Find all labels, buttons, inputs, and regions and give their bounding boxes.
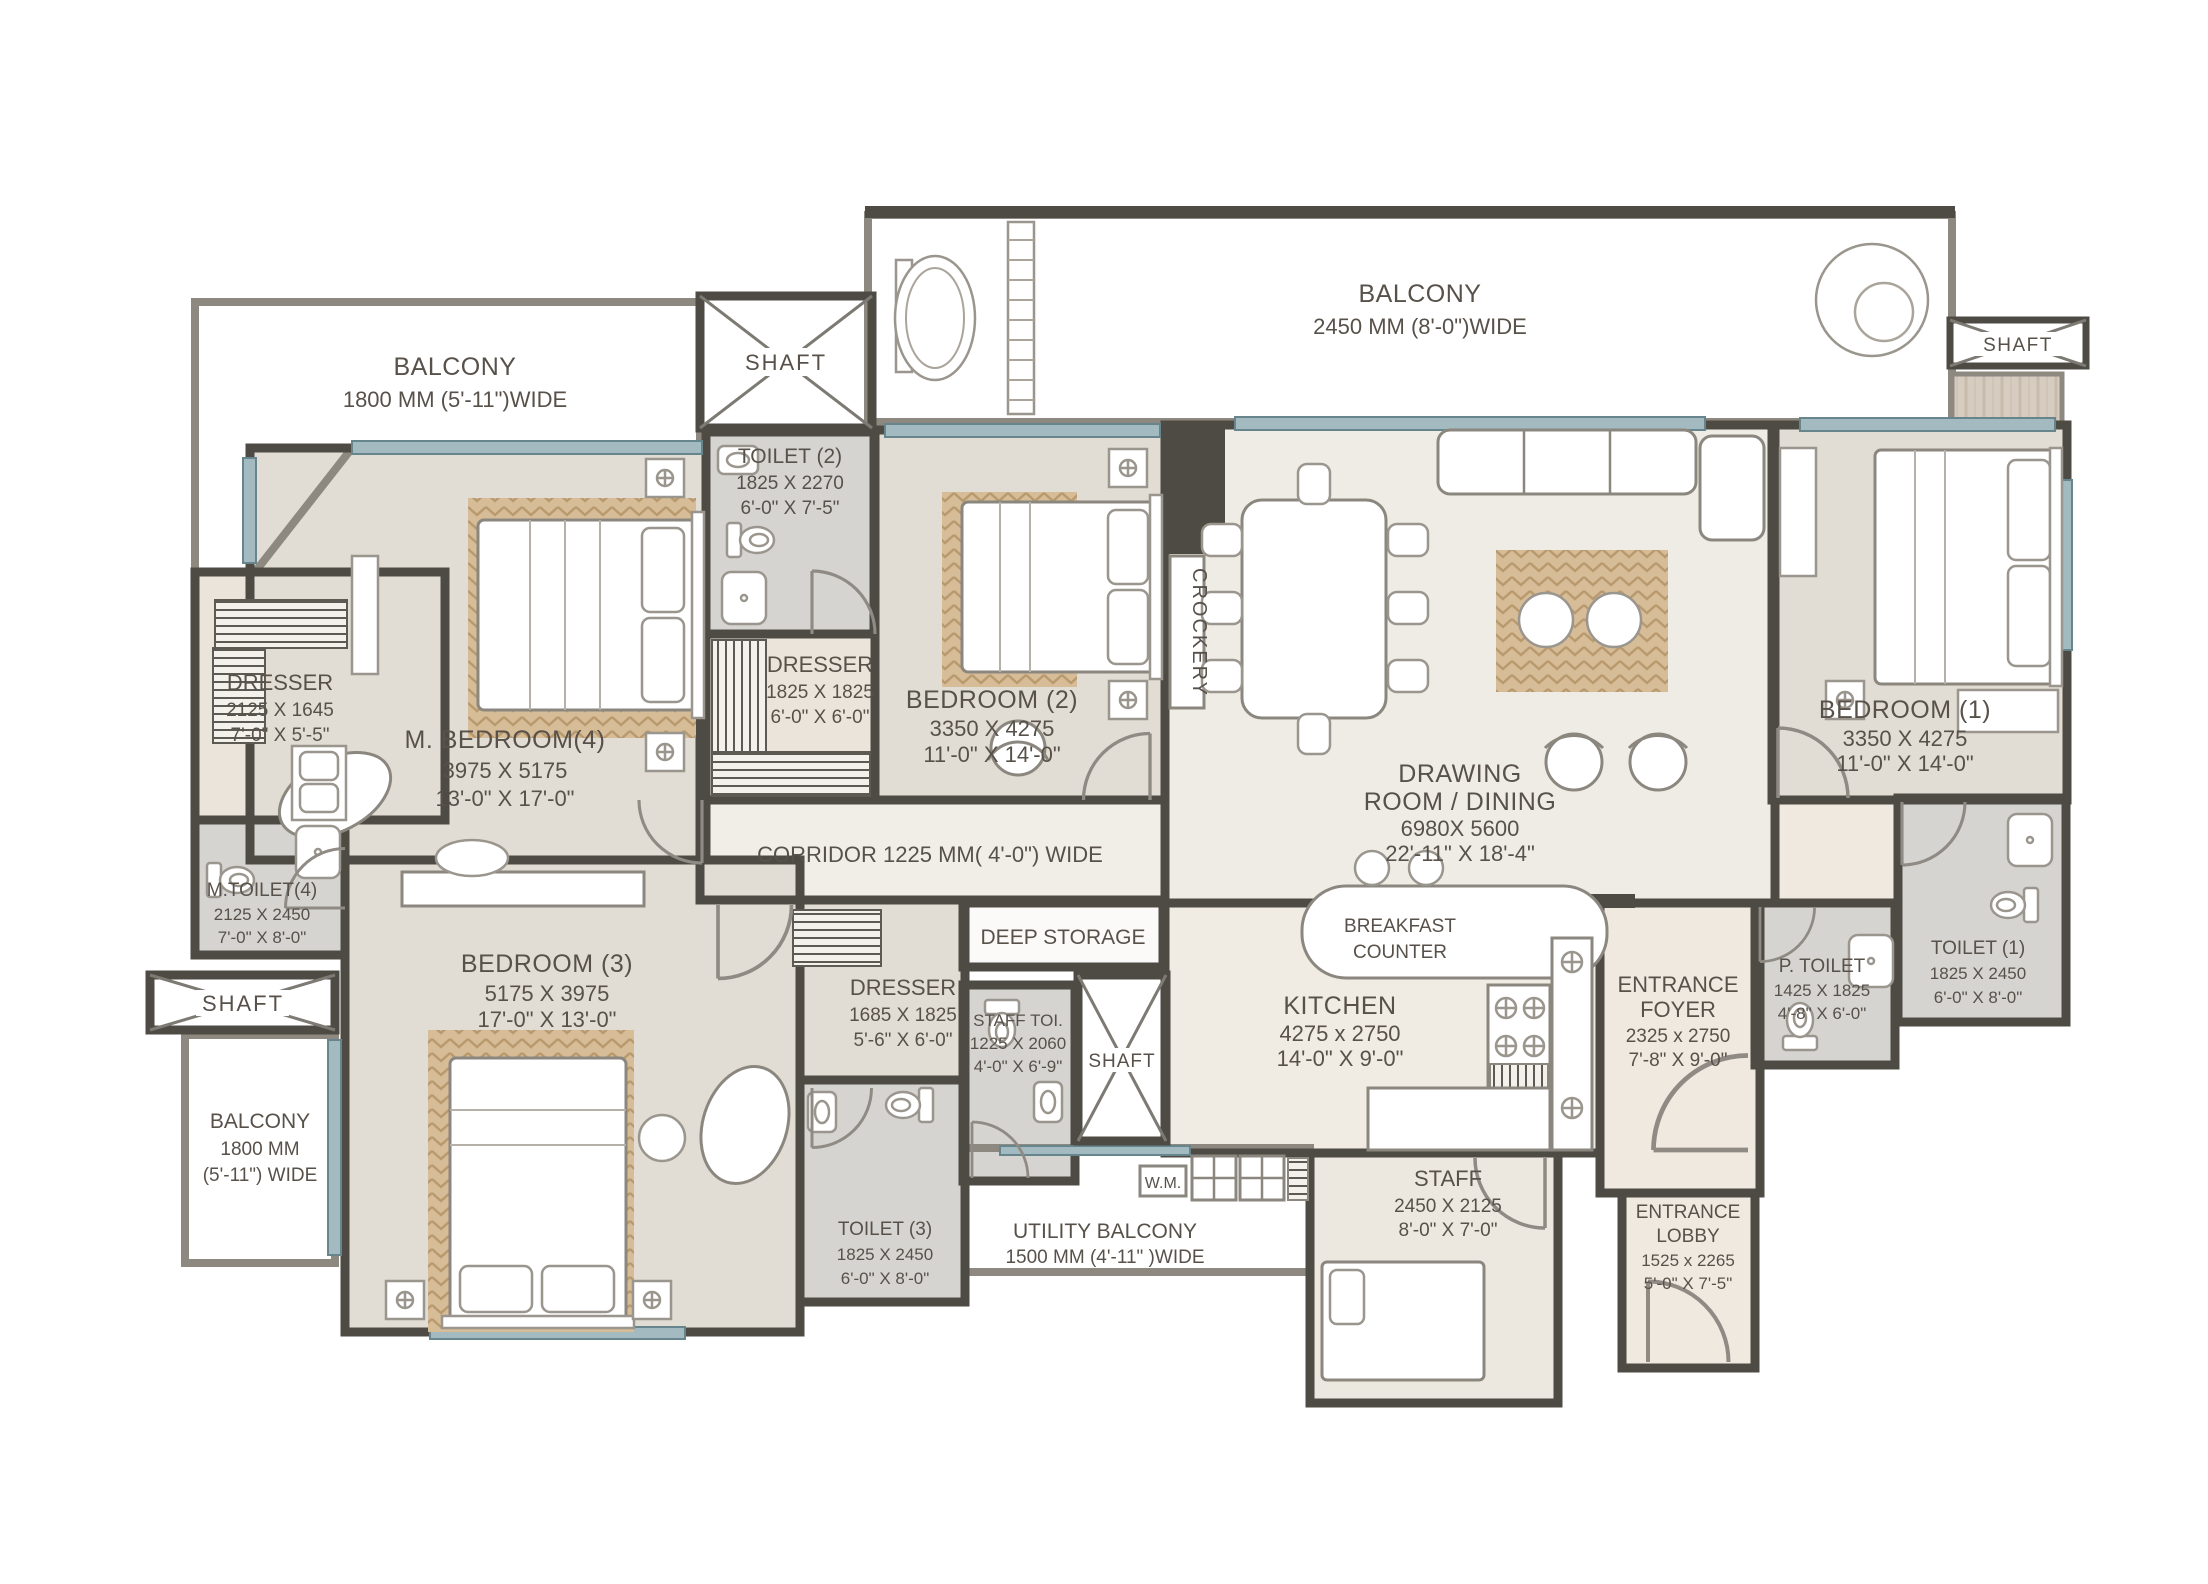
- foyer-dim-ft: 7'-8" X 9'-0": [1629, 1050, 1728, 1071]
- side-table-icon: [646, 733, 684, 771]
- pillow: [2008, 460, 2050, 560]
- toilet-3-dim-mm: 1825 X 2450: [837, 1245, 933, 1264]
- headboard: [442, 1316, 634, 1328]
- shaft-top-right: SHAFT: [1950, 320, 2086, 366]
- desk-chair-icon: [436, 840, 508, 876]
- balcony-bl-dim-ft: (5'-11") WIDE: [203, 1165, 318, 1186]
- pillow: [542, 1266, 614, 1312]
- window-drawing-room: [1235, 417, 1705, 430]
- lobby-dim-ft: 5'-0" X 7'-5": [1644, 1274, 1733, 1293]
- sofa-icon: [1700, 436, 1764, 540]
- lobby-dim-mm: 1525 x 2265: [1641, 1251, 1735, 1270]
- toilet-2-name: TOILET (2): [738, 445, 842, 468]
- drawing-name-2: ROOM / DINING: [1364, 788, 1557, 816]
- shaft-center: SHAFT: [1078, 975, 1166, 1141]
- window-bedroom-2: [885, 424, 1160, 437]
- shaft-center-label: SHAFT: [1088, 1051, 1155, 1072]
- floor-plan: SHAFT SHAFT SHAFT SHAFT: [0, 0, 2208, 1584]
- m-toilet-dim-mm: 2125 X 2450: [214, 905, 310, 924]
- window-bedroom-1: [1800, 418, 2055, 431]
- shaft-left-label: SHAFT: [202, 991, 284, 1016]
- side-table-icon: [633, 1281, 671, 1319]
- pillow: [642, 528, 684, 612]
- basin-icon: [300, 752, 338, 780]
- window-master-balcony: [243, 458, 256, 563]
- basin-icon: [1034, 1082, 1062, 1122]
- drawing-dim-ft: 22'-11" X 18'-4": [1385, 841, 1535, 866]
- shaft-top-left-label: SHAFT: [745, 350, 827, 375]
- sofa-icon: [1438, 430, 1696, 494]
- balcony-bl-name: BALCONY: [210, 1110, 310, 1133]
- master-bedroom-name: M. BEDROOM(4): [405, 726, 606, 754]
- staff-toilet-name: STAFF TOI.: [973, 1011, 1063, 1030]
- shower-icon: [2008, 814, 2052, 866]
- foyer-name-2: FOYER: [1640, 997, 1716, 1022]
- m-toilet-dim-ft: 7'-0" X 8'-0": [218, 928, 307, 947]
- dresser-master-dim-mm: 2125 X 1645: [226, 700, 334, 721]
- chair-icon: [1298, 714, 1330, 754]
- chair-icon: [1202, 524, 1242, 556]
- bedroom-3-name: BEDROOM (3): [461, 950, 633, 978]
- dresser-master-dim-ft: 7'-0" X 5'-5": [231, 725, 330, 746]
- bedroom-2-dim-mm: 3350 X 4275: [930, 716, 1055, 741]
- burner-icon: [1524, 1036, 1544, 1056]
- staff-toilet-dim-ft: 4'-0" X 6'-9": [974, 1057, 1063, 1076]
- p-toilet-dim-mm: 1425 X 1825: [1774, 981, 1870, 1000]
- pouf-icon: [639, 1115, 685, 1161]
- kitchen-dim-mm: 4275 x 2750: [1279, 1021, 1400, 1046]
- kitchen-name: KITCHEN: [1283, 992, 1396, 1020]
- breakfast-name-2: COUNTER: [1353, 942, 1447, 963]
- headboard: [2050, 448, 2062, 686]
- staff-room-dim-ft: 8'-0" X 7'-0": [1399, 1220, 1498, 1241]
- staff-room-name: STAFF: [1414, 1166, 1482, 1191]
- chair-icon: [1388, 592, 1428, 624]
- dresser-2-dim-mm: 1825 X 1825: [766, 682, 874, 703]
- basin-icon: [300, 784, 338, 812]
- wardrobe-icon: [712, 640, 766, 752]
- balcony-top-dim: 2450 MM (8'-0")WIDE: [1313, 314, 1527, 339]
- burner-icon: [1496, 1036, 1516, 1056]
- dresser-3-name: DRESSER: [850, 975, 956, 1000]
- tv-console: [352, 556, 378, 674]
- balcony-top-left-dim: 1800 MM (5'-11")WIDE: [343, 387, 567, 412]
- window-utility: [1000, 1146, 1190, 1155]
- shaft-top-right-label: SHAFT: [1983, 335, 2053, 356]
- wardrobe-icon: [712, 752, 870, 796]
- pillow: [460, 1266, 532, 1312]
- utility-balcony-dim: 1500 MM (4'-11" )WIDE: [1005, 1247, 1204, 1268]
- lounge-chair-icon: [1630, 734, 1686, 790]
- p-toilet-name: P. TOILET: [1779, 956, 1866, 977]
- side-table-icon: [646, 459, 684, 497]
- balcony-ladder-icon: [1008, 222, 1034, 414]
- desk-icon: [402, 872, 644, 906]
- balcony-top-name: BALCONY: [1359, 280, 1482, 308]
- toilet-2-dim-mm: 1825 X 2270: [736, 473, 844, 494]
- pillow: [2008, 566, 2050, 666]
- lounge-chair-icon: [1546, 734, 1602, 790]
- pillow: [1108, 590, 1148, 664]
- hob-symbol-icon: [1562, 952, 1582, 972]
- chair-icon: [1388, 660, 1428, 692]
- drawing-dim-mm: 6980X 5600: [1401, 816, 1520, 841]
- bedroom-1-dim-ft: 11'-0" X 14'-0": [1836, 751, 1973, 776]
- stool-icon: [1355, 851, 1389, 885]
- master-bedroom-dim-mm: 3975 X 5175: [443, 758, 568, 783]
- dresser-3-dim-mm: 1685 X 1825: [849, 1005, 957, 1026]
- utility-balcony-name: UTILITY BALCONY: [1013, 1220, 1197, 1243]
- crockery-label: CROCKERY: [1188, 568, 1210, 697]
- foyer-dim-mm: 2325 x 2750: [1626, 1026, 1731, 1047]
- bedroom-3-dim-ft: 17'-0" X 13'-0": [478, 1007, 617, 1032]
- side-table-icon: [1109, 449, 1147, 487]
- wc-icon: [727, 523, 774, 557]
- bedroom-1-name: BEDROOM (1): [1819, 696, 1991, 724]
- drawing-name-1: DRAWING: [1398, 760, 1521, 788]
- dresser-2-name: DRESSER: [767, 652, 873, 677]
- dining-table-icon: [1242, 500, 1386, 718]
- foyer-name-1: ENTRANCE: [1617, 972, 1738, 997]
- master-bedroom-dim-ft: 13'-0" X 17'-0": [436, 786, 575, 811]
- toilet-1-dim-mm: 1825 X 2450: [1930, 964, 2026, 983]
- pouf-icon: [1587, 593, 1641, 647]
- window-master-bedroom: [352, 441, 702, 454]
- p-toilet-dim-ft: 4'-8" X 6'-0": [1778, 1004, 1867, 1023]
- closet-icon: [1780, 448, 1816, 576]
- shaft-left: SHAFT: [150, 975, 335, 1030]
- burner-icon: [1496, 998, 1516, 1018]
- lobby-name-2: LOBBY: [1656, 1226, 1720, 1247]
- pillow: [1330, 1270, 1364, 1324]
- chair-icon: [1388, 524, 1428, 556]
- hob-symbol-icon: [1562, 1098, 1582, 1118]
- wardrobe-icon: [793, 910, 881, 966]
- m-toilet-name: M.TOILET(4): [207, 880, 318, 901]
- side-table-icon: [1109, 681, 1147, 719]
- pillow: [642, 618, 684, 702]
- deep-storage-label: DEEP STORAGE: [981, 926, 1146, 949]
- lobby-name-1: ENTRANCE: [1636, 1202, 1741, 1223]
- toilet-1-dim-ft: 6'-0" X 8'-0": [1934, 988, 2023, 1007]
- bedroom-2-dim-ft: 11'-0" X 14'-0": [923, 742, 1060, 767]
- bedroom-3-dim-mm: 5175 X 3975: [485, 981, 610, 1006]
- staff-toilet-dim-mm: 1225 X 2060: [970, 1034, 1066, 1053]
- toilet-2-dim-ft: 6'-0" X 7'-5": [741, 498, 840, 519]
- side-table-icon: [386, 1281, 424, 1319]
- balcony-top-left-name: BALCONY: [394, 353, 517, 381]
- bedroom-1-dim-mm: 3350 X 4275: [1843, 726, 1968, 751]
- kitchen-dim-ft: 14'-0" X 9'-0": [1277, 1046, 1404, 1071]
- wc-icon: [1991, 888, 2038, 922]
- passage-floor: [1772, 800, 1898, 903]
- shaft-top-left: SHAFT: [700, 296, 872, 428]
- chair-icon: [1298, 464, 1330, 504]
- window-bedroom-3-balcony: [328, 1040, 341, 1255]
- wm-label: W.M.: [1145, 1175, 1181, 1192]
- toilet-3-name: TOILET (3): [838, 1219, 932, 1240]
- utility-grill: [1288, 1158, 1308, 1200]
- pouf-icon: [1519, 593, 1573, 647]
- dresser-3-dim-ft: 5'-6" X 6'-0": [854, 1030, 953, 1051]
- bedroom-2-name: BEDROOM (2): [906, 686, 1078, 714]
- burner-icon: [1524, 998, 1544, 1018]
- wardrobe-icon: [215, 600, 347, 648]
- wc-icon: [886, 1088, 933, 1122]
- counter: [1368, 1088, 1550, 1150]
- headboard: [692, 512, 704, 718]
- dresser-master-name: DRESSER: [227, 670, 333, 695]
- corridor-label: CORRIDOR 1225 MM( 4'-0") WIDE: [757, 842, 1103, 867]
- dresser-2-dim-ft: 6'-0" X 6'-0": [771, 707, 870, 728]
- toilet-3-dim-ft: 6'-0" X 8'-0": [841, 1269, 930, 1288]
- pillow: [1108, 510, 1148, 584]
- headboard: [1150, 495, 1162, 679]
- toilet-1-name: TOILET (1): [1931, 938, 2025, 959]
- staff-room-dim-mm: 2450 X 2125: [1394, 1196, 1502, 1217]
- balcony-bl-dim-mm: 1800 MM: [220, 1139, 299, 1160]
- shower-icon: [722, 572, 766, 624]
- shower-icon: [296, 826, 340, 878]
- floor-plan-svg: SHAFT SHAFT SHAFT SHAFT: [0, 0, 2208, 1584]
- breakfast-name-1: BREAKFAST: [1344, 916, 1456, 937]
